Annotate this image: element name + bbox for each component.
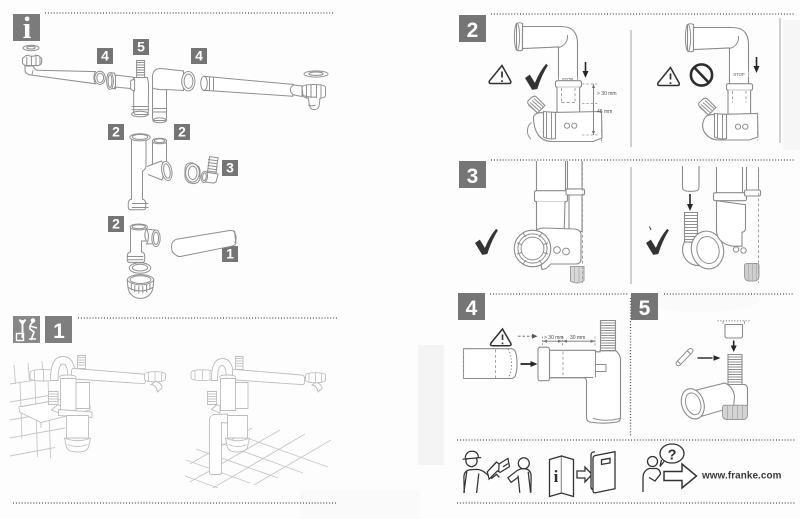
svg-text:1: 1	[53, 320, 65, 343]
svg-text:5: 5	[639, 297, 651, 320]
svg-text:2: 2	[467, 19, 479, 42]
svg-text:> 30 mm: > 30 mm	[597, 91, 617, 97]
svg-text:2: 2	[112, 124, 120, 140]
svg-text:www.franke.com: www.franke.com	[701, 471, 782, 482]
svg-text:i: i	[554, 467, 559, 486]
svg-text:3: 3	[226, 160, 234, 176]
svg-text:5: 5	[137, 39, 145, 55]
svg-text:STOP: STOP	[733, 72, 745, 77]
svg-text:?: ?	[668, 448, 677, 464]
svg-text:3: 3	[467, 165, 479, 188]
svg-text:2: 2	[178, 124, 186, 140]
svg-text:2: 2	[112, 216, 120, 232]
svg-text:30 mm: 30 mm	[570, 335, 585, 341]
svg-text:4: 4	[101, 48, 109, 64]
svg-text:i: i	[23, 10, 32, 45]
svg-text:> 30 mm: > 30 mm	[544, 335, 564, 341]
svg-text:1: 1	[226, 246, 234, 262]
svg-text:4: 4	[195, 48, 203, 64]
svg-text:4: 4	[466, 297, 478, 320]
svg-text:45 mm: 45 mm	[597, 109, 612, 115]
